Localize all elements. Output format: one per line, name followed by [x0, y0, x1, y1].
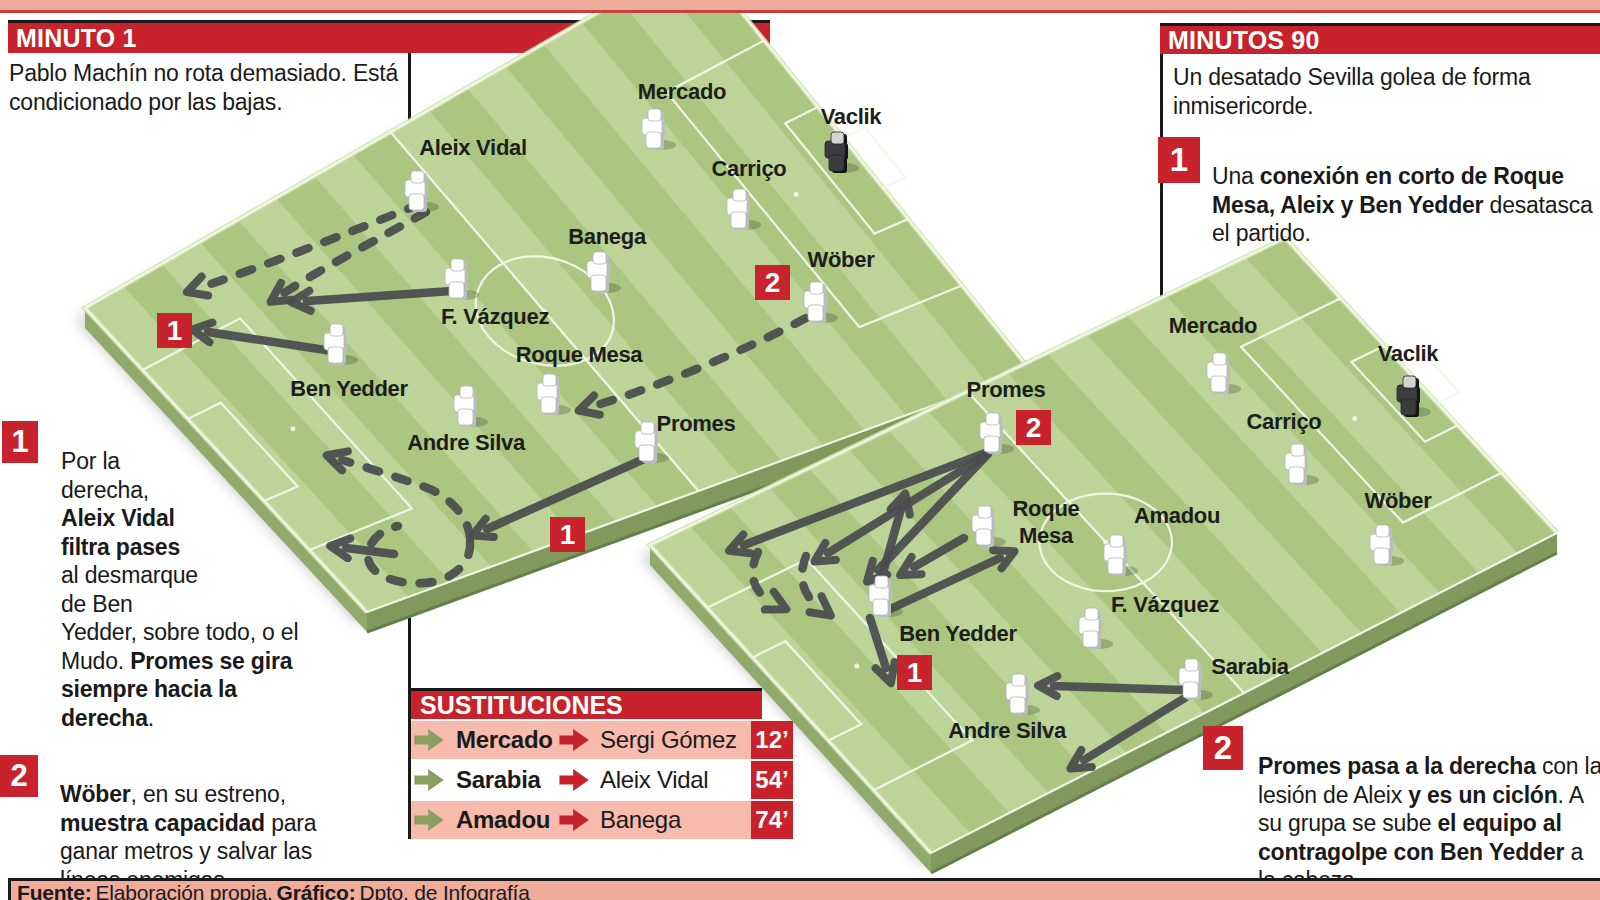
note2-right-seg1: Promes pasa a la derecha [1258, 753, 1536, 779]
note2-left-badge: 2 [0, 755, 38, 797]
player-out-arrow-icon [414, 769, 446, 791]
label-andre-silva: Andre Silva [407, 430, 526, 455]
note2-right-text: Promes pasa a la derecha con la lesión d… [1258, 752, 1600, 895]
substitution-row: Amadou Banega 74’ [411, 801, 793, 839]
note2-left-text: Wöber, en su estreno, muestra capacidad … [60, 780, 336, 894]
note2-left-seg1: Wöber [60, 781, 131, 807]
player-in-arrow-icon [559, 769, 591, 791]
note1-left-seg5: . [148, 705, 154, 731]
note1-left-text: Por la derecha, Aleix Vidal filtra pases… [61, 447, 300, 732]
sub-out-name: Mercado [456, 726, 559, 754]
pitch-number-badge: 1 [550, 517, 585, 552]
sub-out-name: Amadou [456, 806, 559, 834]
label-mercado: Mercado [1169, 313, 1257, 338]
footer-source-label: Fuente: [17, 881, 91, 900]
pitch-spacer [200, 447, 300, 591]
label-wober: Wöber [1365, 488, 1433, 513]
minute1-description: Pablo Machín no rota demasiado. Está con… [9, 59, 413, 117]
svg-text:1: 1 [907, 657, 923, 688]
pitch-number-badge: 2 [1016, 410, 1051, 445]
label-andre-silva: Andre Silva [948, 718, 1067, 743]
sub-minute-badge: 54’ [751, 761, 793, 799]
substitutions-table: SUSTITUCIONES Mercado Sergi Gómez 12’ Sa… [408, 688, 793, 839]
player-in-arrow-icon [559, 809, 591, 831]
svg-text:1: 1 [560, 519, 576, 550]
note1-left-seg2: Aleix Vidal filtra pases [61, 505, 180, 560]
label-amadou: Amadou [1134, 503, 1220, 528]
sub-in-name: Banega [600, 806, 681, 834]
svg-text:2: 2 [1026, 412, 1042, 443]
substitutions-title: SUSTITUCIONES [420, 691, 623, 720]
sub-out-name: Sarabia [456, 766, 559, 794]
sub-in-name: Aleix Vidal [600, 766, 708, 794]
player-out-arrow-icon [414, 809, 446, 831]
note2-left-seg3: muestra capacidad [60, 810, 265, 836]
footer-graphic-label: Gráfico: [277, 881, 356, 900]
label-ben-yedder: Ben Yedder [899, 621, 1017, 646]
sub-minute-badge: 12’ [751, 721, 793, 759]
label-sarabia: Sarabia [1211, 654, 1289, 679]
label-vaclik: Vaclik [1378, 341, 1440, 366]
pass-arrow-solid [346, 548, 394, 554]
sub-in-name: Sergi Gómez [600, 726, 737, 754]
label-promes: Promes [967, 377, 1046, 402]
label-roque-mesa: Roque Mesa [516, 342, 644, 367]
note1-right-text: Una conexión en corto de Roque Mesa, Ale… [1212, 162, 1600, 248]
label-f-vazquez: F. Vázquez [1111, 592, 1220, 617]
label-banega: Banega [568, 224, 647, 249]
label-aleix-vidal: Aleix Vidal [419, 135, 527, 160]
note1-right-seg1: Una [1212, 163, 1260, 189]
label-mercado: Mercado [638, 79, 726, 104]
label-wober: Wöber [808, 247, 876, 272]
substitutions-header: SUSTITUCIONES [411, 688, 762, 719]
sub-minute-badge: 74’ [751, 801, 793, 839]
label-promes: Promes [657, 411, 736, 436]
top-accent-bar [0, 0, 1600, 13]
substitution-row: Mercado Sergi Gómez 12’ [411, 721, 793, 759]
label-f-vazquez: F. Vázquez [441, 304, 550, 329]
pitch-number-badge: 1 [157, 313, 192, 348]
player-in-arrow-icon [559, 729, 591, 751]
pass-arrow-solid [1054, 686, 1183, 690]
footer-source-text: Elaboración propia. [95, 881, 272, 900]
pitch-number-badge: 2 [755, 265, 790, 300]
player-out-arrow-icon [414, 729, 446, 751]
note2-right-badge: 2 [1203, 726, 1243, 770]
svg-text:2: 2 [765, 267, 781, 298]
note1-left-seg1: Por la derecha, [61, 448, 149, 503]
label-ben-yedder: Ben Yedder [290, 376, 408, 401]
note2-right-seg3: y es un ciclón [1408, 782, 1557, 808]
footer-graphic-text: Dpto. de Infografía [360, 881, 530, 900]
svg-text:1: 1 [167, 315, 183, 346]
infographic-canvas: MINUTO 1 Pablo Machín no rota demasiado.… [0, 0, 1600, 900]
label-carrico: Carriço [712, 156, 787, 181]
label-vaclik: Vaclik [821, 104, 883, 129]
note1-right-badge: 1 [1158, 137, 1200, 183]
substitution-row: Sarabia Aleix Vidal 54’ [411, 761, 793, 799]
pitch-number-badge: 1 [897, 655, 932, 690]
minutes90-description: Un desatado Sevilla golea de forma inmis… [1173, 63, 1597, 121]
note1-left-badge: 1 [2, 421, 38, 463]
note2-left-seg2: , en su estreno, [131, 781, 286, 807]
source-footer: Fuente: Elaboración propia. Gráfico: Dpt… [8, 878, 1600, 900]
label-carrico: Carriço [1247, 409, 1322, 434]
